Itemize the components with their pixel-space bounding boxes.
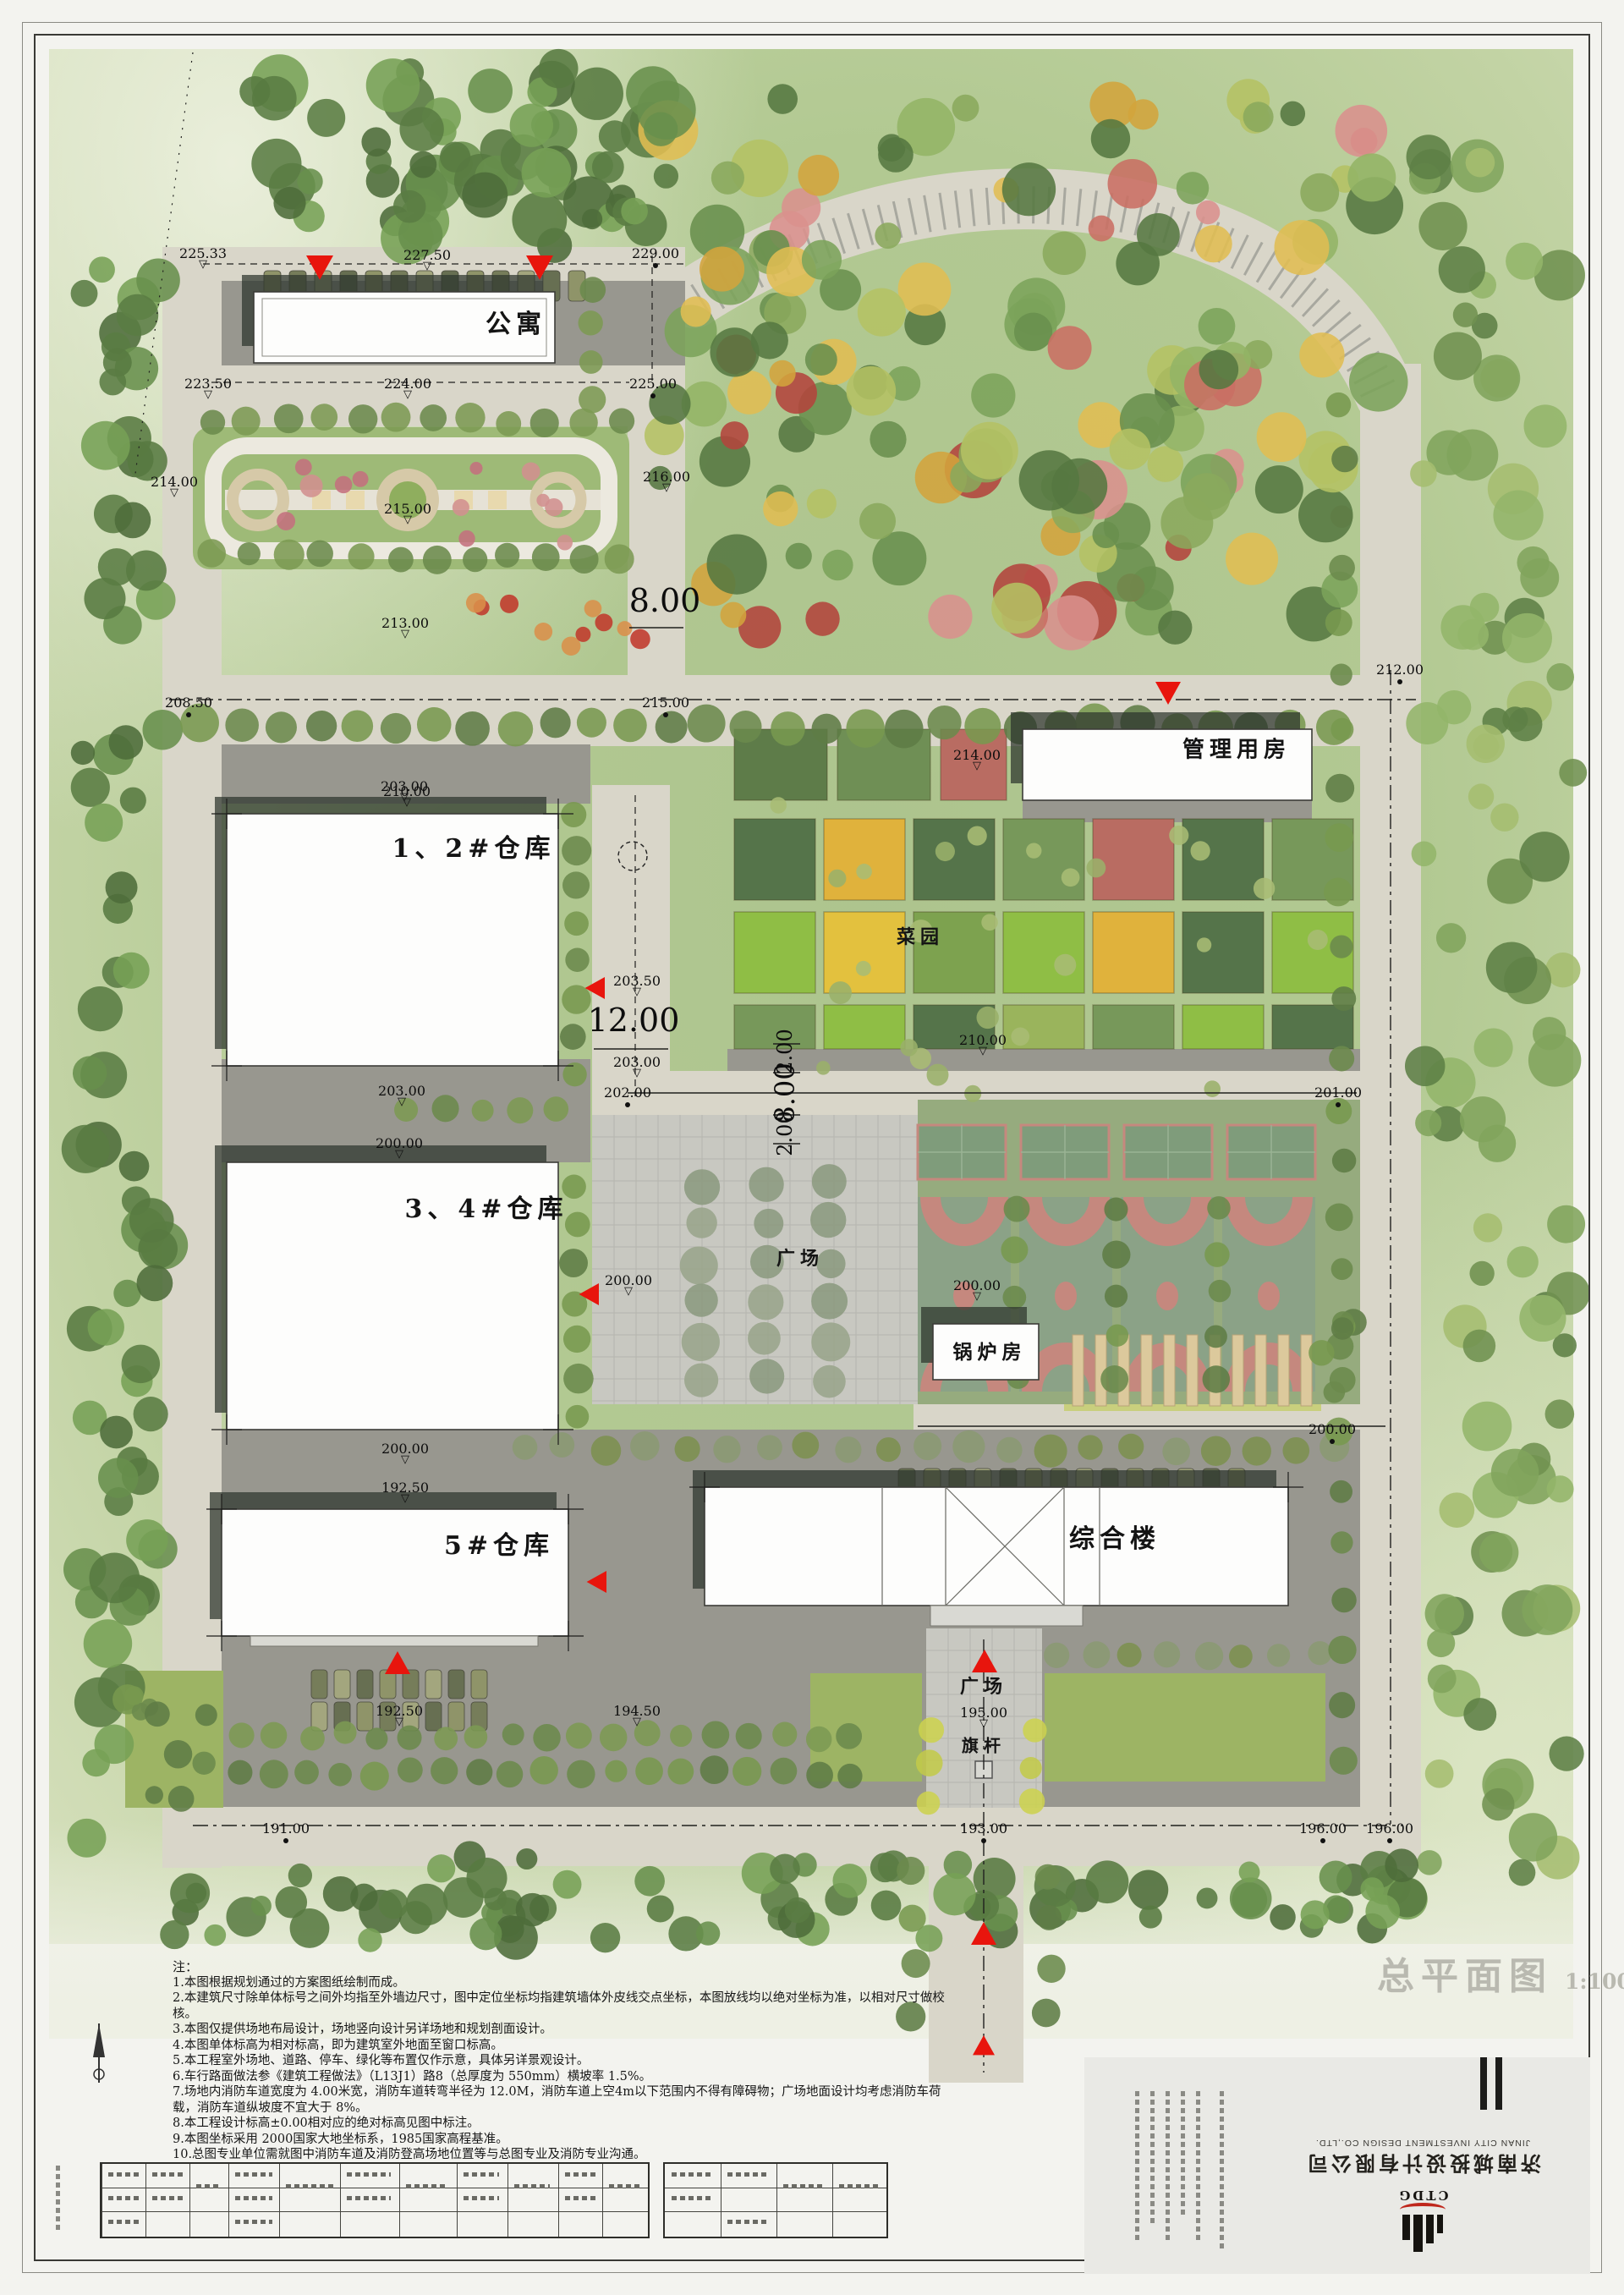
titleblock-table-left <box>100 2162 650 2238</box>
logo-text: CTDG <box>1397 2188 1449 2203</box>
note-line: 6.车行路面做法参《建筑工程做法》（L13J1）路8（总厚度为 550mm）横坡… <box>173 2069 951 2085</box>
drawing-title: 总平面图1:1000 <box>1377 1946 1624 2000</box>
company-rotated-block: CTDG 济南城投设计有限公司 JINAN CITY INVESTMENT DE… <box>1279 2108 1566 2252</box>
note-line: 10.总图专业单位需就图中消防车道及消防登高场地位置等与总图专业及消防专业沟通。 <box>173 2147 951 2163</box>
note-line: 3.本图仅提供场地布局设计，场地竖向设计另详场地和规划剖面设计。 <box>173 2022 951 2038</box>
note-line: 8.本工程设计标高±0.00相对应的绝对标高见图中标注。 <box>173 2116 951 2132</box>
company-name-cn: 济南城投设计有限公司 <box>1279 2150 1566 2180</box>
note-line: 4.本图单体标高为相对标高，即为建筑室外地面至窗口标高。 <box>173 2038 951 2054</box>
binding-marks <box>1480 2057 1511 2114</box>
titleblock-company: CTDG 济南城投设计有限公司 JINAN CITY INVESTMENT DE… <box>1084 2057 1590 2274</box>
margin-note <box>56 2166 60 2233</box>
note-line: 5.本工程室外场地、道路、停车、绿化等布置仅作示意，具体另详景观设计。 <box>173 2053 951 2069</box>
sheet-border-inner <box>34 34 1590 2261</box>
general-notes: 注： 1.本图根据规划通过的方案图纸绘制而成。 2.本建筑尺寸除单体标号之间外均… <box>173 1959 951 2163</box>
drawing-title-text: 总平面图 <box>1377 1955 1553 1998</box>
company-name-en: JINAN CITY INVESTMENT DESIGN CO.,LTD. <box>1279 2138 1566 2148</box>
note-line: 1.本图根据规划通过的方案图纸绘制而成。 <box>173 1975 951 1991</box>
citdg-logo: CTDG <box>1397 2188 1449 2252</box>
note-line: 7.场地内消防车道宽度为 4.00米宽，消防车道转弯半径为 12.0M，消防车道… <box>173 2084 951 2116</box>
notes-header: 注： <box>173 1959 951 1975</box>
note-line: 2.本建筑尺寸除单体标号之间外均指至外墙边尺寸，图中定位坐标均指建筑墙体外皮线交… <box>173 1990 951 2022</box>
drawing-scale: 1:1000 <box>1565 1969 1624 1994</box>
sheet: 225.33▽227.50▽223.50▽224.00▽214.00▽215.0… <box>0 0 1624 2295</box>
titleblock-table-right <box>663 2162 888 2238</box>
note-line: 9.本图坐标采用 2000国家大地坐标系，1985国家高程基准。 <box>173 2132 951 2148</box>
